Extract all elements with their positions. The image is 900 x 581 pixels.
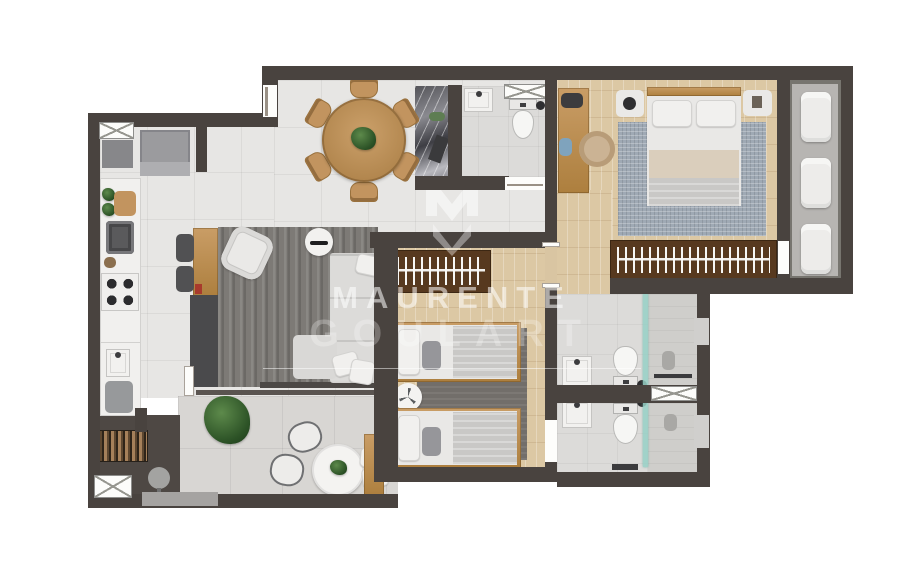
shower-drain <box>662 351 675 370</box>
laundry-tub <box>105 381 133 413</box>
wall <box>545 66 557 245</box>
wall <box>415 176 509 190</box>
bar-stool <box>176 266 194 292</box>
bath-vanity <box>464 88 493 112</box>
cutting-board <box>114 191 136 216</box>
bed-blanket <box>453 326 517 378</box>
lounge-chair <box>801 158 831 208</box>
kitchen-item <box>104 257 116 268</box>
bed-blanket <box>453 412 517 464</box>
towel-bar <box>654 374 692 378</box>
kitchen-cabinet <box>102 140 133 168</box>
laundry-fixture <box>106 349 130 377</box>
wall <box>88 494 398 508</box>
vent-shaft <box>504 84 548 99</box>
wall <box>448 85 462 189</box>
shower-glass <box>643 403 648 467</box>
door-leaf <box>507 184 543 186</box>
bed-pillow <box>398 329 420 375</box>
wall <box>196 127 207 172</box>
balcony-door-track <box>196 390 394 395</box>
towel <box>429 112 445 121</box>
shower-glass <box>643 294 648 385</box>
chaise <box>293 335 337 379</box>
lounge-chair <box>801 224 831 274</box>
wall <box>374 232 398 482</box>
kitchen-sink <box>106 221 134 254</box>
dining-chair <box>350 78 378 98</box>
floor-plan: MAURENTE GOULART <box>0 0 900 581</box>
laptop <box>561 93 583 108</box>
wall <box>88 113 100 508</box>
door-frame <box>542 242 560 247</box>
bed-pillow-dark <box>422 341 441 370</box>
desk-item <box>559 138 572 156</box>
bed-runner <box>649 150 739 178</box>
lounge-chair <box>801 92 831 142</box>
bed-pillow-dark <box>422 427 441 456</box>
bath1-vanity <box>562 356 592 386</box>
door-opening <box>545 245 557 285</box>
table-lamp <box>623 97 636 110</box>
balcony-door-opening <box>778 241 789 274</box>
fridge <box>140 130 190 176</box>
table-plant <box>330 460 347 475</box>
wall <box>135 408 147 432</box>
wall-niche <box>694 318 709 345</box>
door-opening <box>545 420 557 462</box>
bath2-toilet-tank <box>613 403 638 414</box>
wall <box>545 285 557 420</box>
vent-shaft <box>94 475 132 498</box>
doormat <box>142 492 218 506</box>
louver-vent <box>96 430 148 462</box>
door-frame <box>184 366 194 396</box>
closet-hangers <box>397 257 485 285</box>
bed-pillow <box>652 100 692 127</box>
bed-blanket <box>649 178 739 206</box>
door-frame <box>542 283 560 288</box>
shower-drain <box>664 414 677 431</box>
bath2-vanity <box>562 399 592 428</box>
toilet-tank <box>509 99 537 110</box>
fan-side-table <box>394 383 422 411</box>
wall <box>370 232 557 248</box>
floor-lamp <box>148 467 170 489</box>
decor-red <box>195 284 202 294</box>
bed-pillow <box>696 100 736 127</box>
vent-shaft <box>99 122 134 139</box>
waste-bin <box>536 101 545 110</box>
desk-chair <box>579 131 615 167</box>
dining-chair <box>350 182 378 202</box>
vent-shaft <box>651 386 697 401</box>
wall <box>557 472 710 487</box>
chaise-pillow <box>348 358 376 386</box>
wall <box>262 66 853 80</box>
wall <box>610 278 853 294</box>
bed-pillow <box>398 415 420 461</box>
entry-door-leaf <box>265 87 268 116</box>
bed-headboard <box>647 87 741 96</box>
nightstand-decor <box>752 96 762 108</box>
wall-niche <box>694 415 709 448</box>
wall <box>841 66 853 293</box>
sideboard-dark <box>190 295 218 387</box>
side-table <box>305 228 333 256</box>
bath-mat <box>612 464 638 470</box>
wardrobe-hangers <box>617 247 770 273</box>
table-plant <box>351 127 376 150</box>
floor-shower1 <box>648 294 697 386</box>
stove <box>101 273 139 311</box>
bar-stool <box>176 234 194 262</box>
wall <box>386 467 557 482</box>
